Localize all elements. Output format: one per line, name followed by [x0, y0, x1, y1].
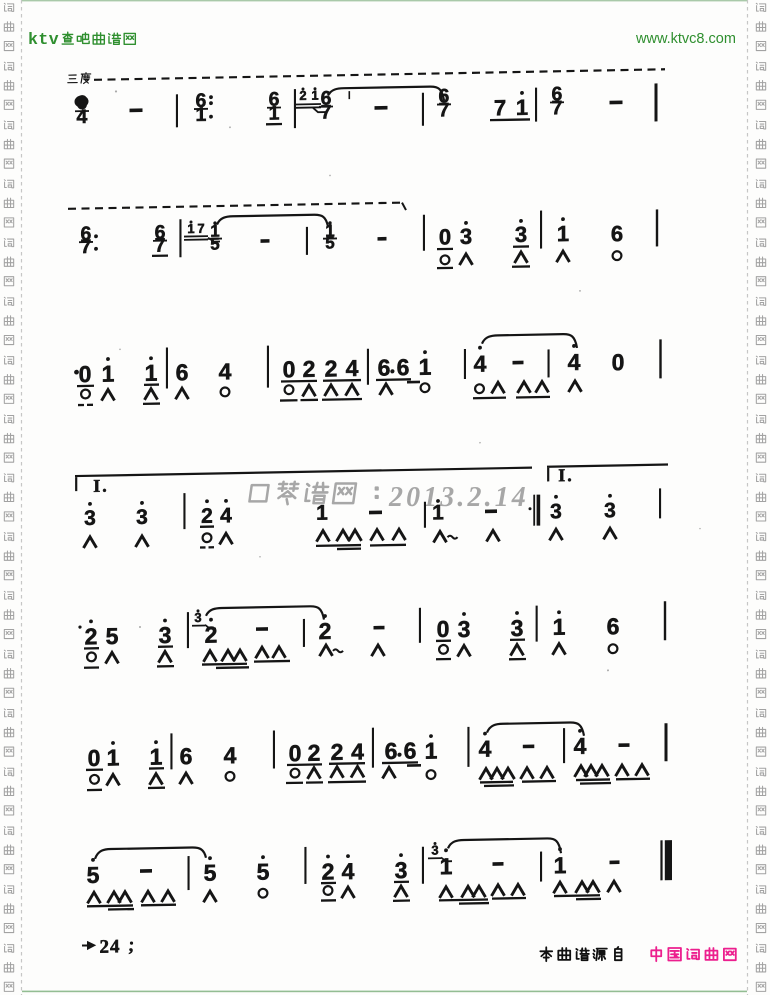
svg-text:1: 1 [145, 360, 158, 386]
svg-text:7: 7 [321, 101, 332, 123]
svg-text:3: 3 [515, 222, 527, 247]
svg-text:3: 3 [550, 500, 562, 523]
svg-text:6: 6 [607, 613, 620, 639]
svg-text:1: 1 [557, 221, 569, 246]
svg-text:7: 7 [494, 95, 506, 120]
svg-text:1: 1 [107, 744, 120, 770]
svg-text:,: , [129, 935, 133, 955]
svg-text:1: 1 [419, 354, 432, 380]
svg-text:7: 7 [81, 236, 92, 258]
svg-text:7: 7 [552, 97, 563, 119]
svg-text:2: 2 [205, 622, 218, 648]
svg-text:0: 0 [79, 361, 92, 387]
svg-text:I.: I. [558, 465, 574, 485]
svg-text:6: 6 [385, 738, 398, 764]
svg-text:www.ktvc8.com: www.ktvc8.com [635, 31, 736, 47]
svg-text:4: 4 [568, 349, 581, 375]
svg-text:6: 6 [176, 359, 189, 385]
svg-text:4: 4 [574, 733, 587, 759]
svg-text:4: 4 [351, 738, 364, 764]
svg-text:0: 0 [612, 349, 625, 375]
svg-text:3: 3 [511, 615, 524, 641]
svg-text:6: 6 [611, 221, 623, 246]
svg-text:2: 2 [325, 355, 338, 381]
svg-text:1: 1 [102, 360, 115, 386]
svg-text:5: 5 [257, 859, 270, 885]
svg-text:5: 5 [204, 860, 217, 886]
svg-text:1: 1 [425, 737, 438, 763]
svg-text:4: 4 [219, 358, 232, 384]
svg-text:0: 0 [437, 616, 450, 642]
svg-text:2013.2.14: 2013.2.14 [388, 482, 529, 513]
svg-text:3: 3 [159, 622, 172, 648]
svg-text:1: 1 [316, 502, 328, 525]
svg-text:2: 2 [322, 858, 335, 884]
svg-text:5: 5 [210, 235, 219, 254]
svg-text:2: 2 [303, 356, 316, 382]
svg-text:3: 3 [395, 857, 408, 883]
svg-text:6: 6 [397, 354, 410, 380]
svg-text:5: 5 [106, 623, 119, 649]
svg-text:4: 4 [479, 735, 492, 761]
svg-text:I.: I. [93, 476, 109, 496]
svg-text:ktv: ktv [28, 30, 59, 49]
svg-text:6: 6 [180, 743, 193, 769]
svg-text:2: 2 [319, 618, 332, 644]
svg-text:1: 1 [150, 744, 163, 770]
svg-text:3: 3 [84, 507, 96, 530]
svg-text:4: 4 [220, 504, 232, 527]
svg-text:1: 1 [432, 501, 444, 524]
svg-text:2: 2 [331, 739, 344, 765]
svg-text:3: 3 [604, 499, 616, 522]
svg-text:7: 7 [155, 235, 166, 257]
svg-text:0: 0 [289, 740, 302, 766]
svg-text:24: 24 [99, 936, 120, 957]
svg-text:0: 0 [88, 745, 101, 771]
svg-text:5: 5 [87, 862, 100, 888]
svg-text:6: 6 [378, 354, 391, 380]
svg-text:2: 2 [308, 740, 321, 766]
svg-text:1: 1 [516, 95, 528, 120]
svg-text:0: 0 [439, 224, 451, 249]
svg-text:2: 2 [85, 623, 98, 649]
svg-text:6: 6 [404, 737, 417, 763]
svg-text:2: 2 [201, 505, 213, 528]
svg-text:1: 1 [269, 102, 280, 124]
svg-text:7: 7 [197, 221, 204, 236]
svg-text:1: 1 [554, 852, 567, 878]
svg-text:1: 1 [440, 853, 453, 879]
svg-text:0: 0 [283, 356, 296, 382]
svg-text:4: 4 [346, 355, 359, 381]
svg-text:3: 3 [460, 224, 472, 249]
svg-text:1: 1 [196, 104, 207, 126]
svg-text:1: 1 [553, 614, 566, 640]
svg-text:7: 7 [439, 99, 450, 121]
svg-text:4: 4 [342, 858, 355, 884]
svg-text:4: 4 [77, 106, 88, 128]
svg-text:5: 5 [325, 233, 334, 252]
svg-text:3: 3 [136, 506, 148, 529]
svg-text:4: 4 [474, 351, 487, 377]
svg-text:4: 4 [224, 742, 237, 768]
svg-text:3: 3 [458, 616, 471, 642]
